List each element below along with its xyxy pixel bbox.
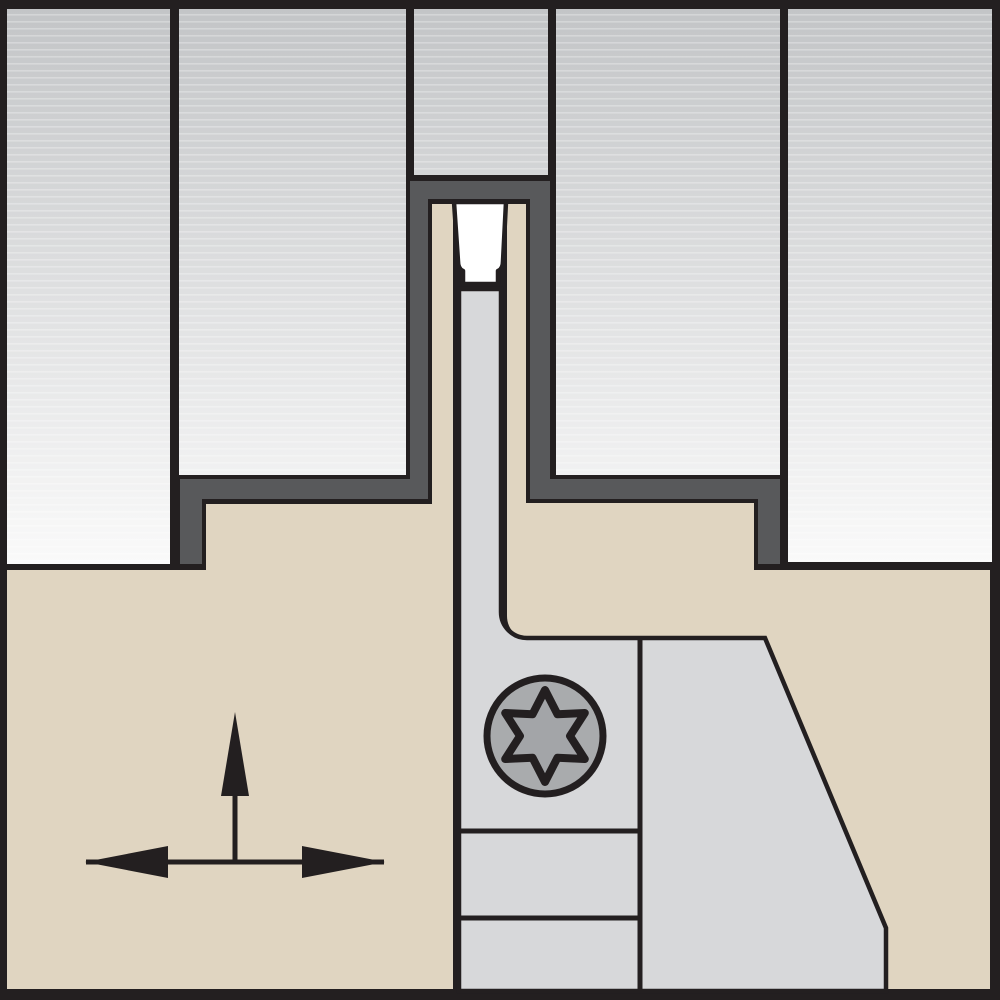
grooving-insert [454,202,506,284]
tool-cross-section-diagram [0,0,1000,1000]
diagram-canvas [0,0,1000,1000]
clamp-screw [487,678,603,794]
